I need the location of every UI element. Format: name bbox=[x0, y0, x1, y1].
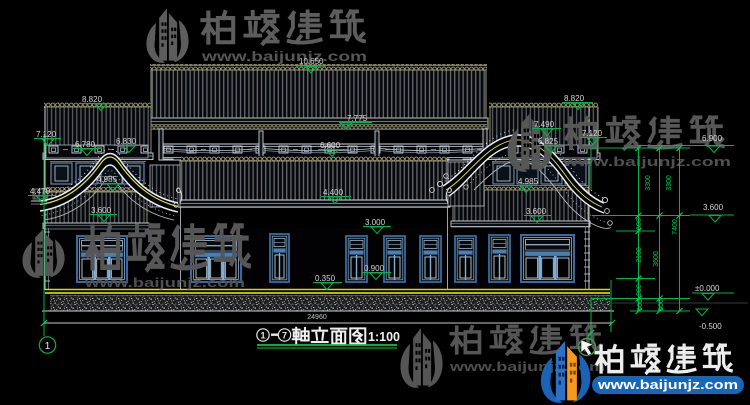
svg-text:7.120: 7.120 bbox=[36, 130, 57, 139]
svg-text:3600: 3600 bbox=[653, 251, 660, 267]
svg-text:www.baijunjz.com: www.baijunjz.com bbox=[597, 378, 738, 392]
svg-text:24960: 24960 bbox=[307, 314, 327, 321]
svg-text:7.490: 7.490 bbox=[534, 120, 555, 129]
svg-text:2100: 2100 bbox=[636, 247, 643, 263]
svg-text:±0.000: ±0.000 bbox=[695, 284, 720, 293]
svg-text:6.600: 6.600 bbox=[320, 141, 341, 150]
svg-text:4.985: 4.985 bbox=[97, 175, 118, 184]
svg-text:7: 7 bbox=[282, 331, 287, 341]
svg-text:0.350: 0.350 bbox=[315, 274, 336, 283]
svg-text:500: 500 bbox=[658, 299, 665, 311]
svg-text:7.120: 7.120 bbox=[582, 129, 603, 138]
svg-text:4.985: 4.985 bbox=[518, 177, 539, 186]
svg-text:3.000: 3.000 bbox=[365, 218, 386, 227]
svg-text:500: 500 bbox=[637, 299, 644, 311]
svg-text:8.820: 8.820 bbox=[564, 94, 585, 103]
svg-text:4.400: 4.400 bbox=[323, 188, 344, 197]
svg-text:www.baijunjz.com: www.baijunjz.com bbox=[201, 49, 367, 64]
svg-text:6.830: 6.830 bbox=[116, 137, 137, 146]
svg-text:900: 900 bbox=[636, 284, 643, 296]
svg-text:www.baijunjz.com: www.baijunjz.com bbox=[562, 154, 731, 169]
svg-text:6.825: 6.825 bbox=[538, 137, 559, 146]
svg-text:3300: 3300 bbox=[645, 175, 652, 191]
svg-text:600: 600 bbox=[636, 218, 643, 230]
svg-text:6.780: 6.780 bbox=[75, 140, 96, 149]
svg-text:1: 1 bbox=[260, 331, 265, 341]
svg-text:8.820: 8.820 bbox=[82, 95, 103, 104]
svg-text:10.650: 10.650 bbox=[299, 57, 324, 66]
svg-text:4.470: 4.470 bbox=[30, 187, 51, 196]
svg-text:3.600: 3.600 bbox=[91, 206, 112, 215]
svg-text:3.600: 3.600 bbox=[526, 207, 547, 216]
svg-text:3.600: 3.600 bbox=[703, 203, 724, 212]
svg-text:6.900: 6.900 bbox=[702, 134, 723, 143]
svg-text:1:100: 1:100 bbox=[368, 330, 400, 344]
svg-text:www.baijunjz.com: www.baijunjz.com bbox=[84, 275, 245, 290]
svg-text:0.900: 0.900 bbox=[364, 264, 385, 273]
svg-text:7.775: 7.775 bbox=[347, 114, 368, 123]
svg-text:1: 1 bbox=[45, 341, 51, 352]
svg-text:-0.500: -0.500 bbox=[699, 322, 722, 331]
svg-text:7400: 7400 bbox=[672, 219, 679, 235]
svg-text:3300: 3300 bbox=[666, 175, 673, 191]
